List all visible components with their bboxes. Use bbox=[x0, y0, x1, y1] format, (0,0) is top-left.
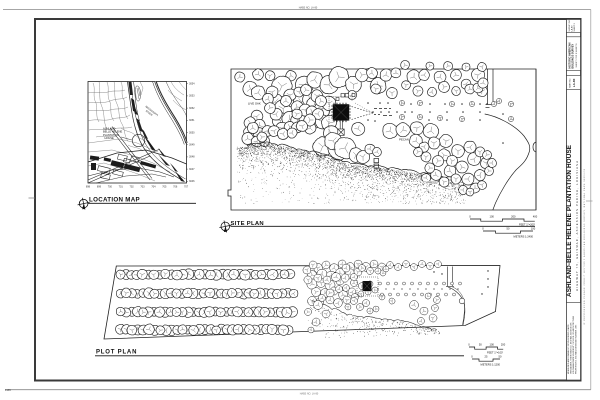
svg-text:3052: 3052 bbox=[189, 107, 195, 110]
svg-text:3049: 3049 bbox=[189, 144, 195, 147]
svg-text:706: 706 bbox=[173, 186, 178, 189]
svg-text:400: 400 bbox=[533, 215, 538, 219]
svg-text:702: 702 bbox=[130, 186, 135, 189]
svg-text:LA-80: LA-80 bbox=[572, 78, 576, 87]
svg-text:3047: 3047 bbox=[189, 168, 195, 171]
svg-text:100: 100 bbox=[490, 343, 495, 347]
svg-text:699: 699 bbox=[97, 186, 102, 189]
svg-text:100: 100 bbox=[531, 227, 536, 231]
svg-text:703: 703 bbox=[140, 186, 145, 189]
svg-text:705: 705 bbox=[162, 186, 167, 189]
svg-text:METERS 1:1200: METERS 1:1200 bbox=[481, 363, 501, 367]
svg-text:3050: 3050 bbox=[189, 131, 195, 134]
svg-text:METERS 1:2400: METERS 1:2400 bbox=[514, 235, 534, 239]
svg-text:3048: 3048 bbox=[189, 156, 195, 159]
svg-text:701: 701 bbox=[119, 186, 124, 189]
svg-text:700: 700 bbox=[108, 186, 113, 189]
svg-text:704: 704 bbox=[151, 186, 156, 189]
svg-text:1985: 1985 bbox=[5, 388, 11, 392]
svg-text:3046: 3046 bbox=[189, 180, 195, 183]
svg-text:LIVE OAK: LIVE OAK bbox=[248, 102, 261, 106]
svg-text:707: 707 bbox=[184, 186, 189, 189]
svg-text:LA-80: LA-80 bbox=[571, 25, 574, 32]
svg-text:200: 200 bbox=[511, 215, 516, 219]
svg-text:PROFESSOR J. MICHAEL DESMOND: PROFESSOR J. MICHAEL DESMOND SUMMER 1985 bbox=[575, 324, 578, 374]
svg-text:SHEET 2 OF 6 SHEETS: SHEET 2 OF 6 SHEETS bbox=[576, 43, 578, 67]
svg-text:3053: 3053 bbox=[189, 95, 195, 98]
svg-text:LOCATION MAP: LOCATION MAP bbox=[89, 197, 140, 204]
svg-text:698: 698 bbox=[86, 186, 91, 189]
svg-text:HABS NO. LA-80: HABS NO. LA-80 bbox=[299, 7, 318, 10]
svg-text:PLOT PLAN: PLOT PLAN bbox=[96, 350, 137, 356]
svg-text:3054: 3054 bbox=[189, 83, 195, 86]
svg-text:SHEET 2: SHEET 2 bbox=[574, 22, 576, 31]
svg-text:HIGHWAY 75, GEISMAR, ASCENSION: HIGHWAY 75, GEISMAR, ASCENSION PARISH, L… bbox=[575, 161, 579, 291]
svg-text:IF REPRODUCED PLEASE CREDIT HI: IF REPRODUCED PLEASE CREDIT HISTORIC AME… bbox=[583, 168, 586, 325]
svg-text:FEET 1"=100': FEET 1"=100' bbox=[487, 351, 504, 355]
svg-text:HOUSE: HOUSE bbox=[105, 136, 114, 140]
svg-text:ASHLAND-BELLE HELENE PLANTATIO: ASHLAND-BELLE HELENE PLANTATION HOUSE bbox=[566, 145, 573, 297]
svg-text:HABS NO. LA-80: HABS NO. LA-80 bbox=[300, 392, 319, 395]
svg-text:CYPRESS: CYPRESS bbox=[423, 181, 437, 185]
svg-text:BUILDINGS SURVEY: BUILDINGS SURVEY bbox=[571, 43, 574, 68]
svg-text:PECAN: PECAN bbox=[399, 138, 409, 142]
svg-text:FEET 1"=200': FEET 1"=200' bbox=[519, 223, 536, 227]
svg-text:3051: 3051 bbox=[189, 119, 195, 122]
svg-text:100: 100 bbox=[490, 215, 495, 219]
svg-text:200: 200 bbox=[501, 343, 506, 347]
